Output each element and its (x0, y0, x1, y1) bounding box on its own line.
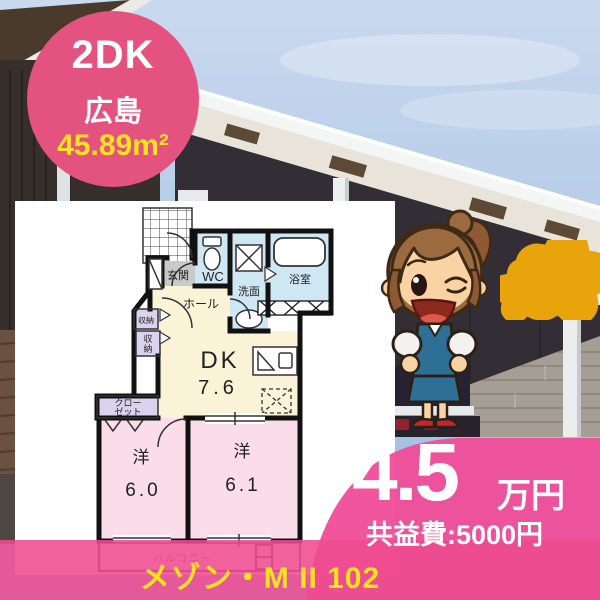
label-room1-size: 6.0 (125, 480, 160, 501)
floor-plan: 玄関 WC 洗面 浴室 ホール 収納 収 納 DK 7.6 クロー ゼット 洋 … (15, 201, 395, 575)
label-storage-a: 収納 (138, 315, 154, 325)
label-hall: ホール (183, 297, 219, 311)
listing-promo-image: 2DK 広島 45.89m² (0, 0, 600, 600)
badge-layout: 2DK (27, 33, 199, 78)
leg (423, 402, 432, 420)
common-fee: 共益費:5000円 (366, 513, 543, 552)
label-dk-size: 7.6 (198, 377, 238, 399)
skirt (408, 376, 461, 402)
rent-unit: 万円 (497, 468, 565, 517)
label-bathroom: 浴室 (289, 272, 311, 286)
stars (500, 240, 600, 320)
sleeve (448, 331, 476, 357)
open-eye (411, 274, 427, 296)
shoe (412, 419, 434, 427)
label-closet-2: ゼット (114, 406, 141, 417)
label-storage-b1: 収 (143, 333, 152, 344)
leg (438, 402, 447, 420)
property-badge: 2DK 広島 45.89m² (27, 11, 199, 187)
label-entrance: 玄関 (167, 268, 189, 282)
label-washroom: 洗面 (238, 285, 260, 298)
property-name: メゾン・M II 102 (100, 553, 420, 597)
badge-area: 45.89m² (27, 129, 199, 163)
washer-icon (236, 245, 262, 271)
star-icon (532, 245, 594, 305)
rent-amount: 4.5 (352, 432, 457, 514)
label-dk: DK (200, 347, 239, 374)
kitchen-counter-icon (253, 347, 297, 375)
toilet-icon (203, 237, 221, 270)
shoe (436, 419, 458, 427)
hand (450, 355, 468, 373)
sleeve (393, 331, 421, 357)
bathtub-icon (274, 238, 325, 266)
label-room2: 洋 (234, 442, 251, 461)
label-wc: WC (202, 269, 224, 284)
hand (401, 355, 419, 373)
shoe-cabinet-icon (149, 259, 162, 289)
label-room2-size: 6.1 (225, 475, 260, 496)
label-room1: 洋 (133, 448, 150, 467)
badge-location: 広島 (27, 88, 199, 130)
label-storage-b2: 納 (143, 343, 152, 354)
